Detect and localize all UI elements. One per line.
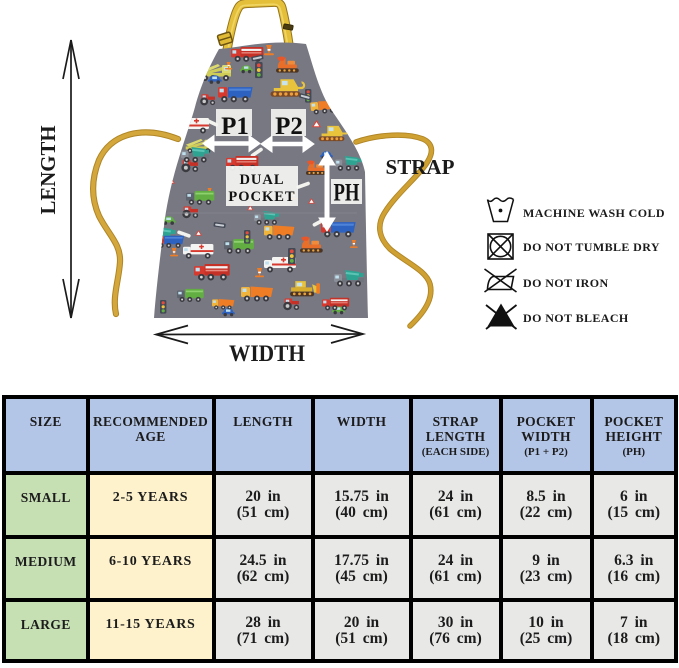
svg-text:DO NOT IRON: DO NOT IRON	[523, 276, 609, 290]
svg-text:P1: P1	[221, 113, 249, 140]
svg-text:DO NOT BLEACH: DO NOT BLEACH	[523, 311, 629, 325]
svg-text:POCKET: POCKET	[228, 189, 295, 205]
svg-text:WIDTH: WIDTH	[229, 341, 305, 366]
svg-text:MACHINE WASH COLD: MACHINE WASH COLD	[523, 206, 665, 220]
svg-text:DUAL: DUAL	[239, 172, 284, 188]
svg-text:STRAP: STRAP	[386, 155, 455, 179]
svg-text:PH: PH	[334, 180, 360, 207]
svg-text:DO NOT TUMBLE DRY: DO NOT TUMBLE DRY	[523, 240, 660, 254]
svg-text:LENGTH: LENGTH	[36, 126, 60, 215]
svg-text:P2: P2	[275, 113, 303, 140]
